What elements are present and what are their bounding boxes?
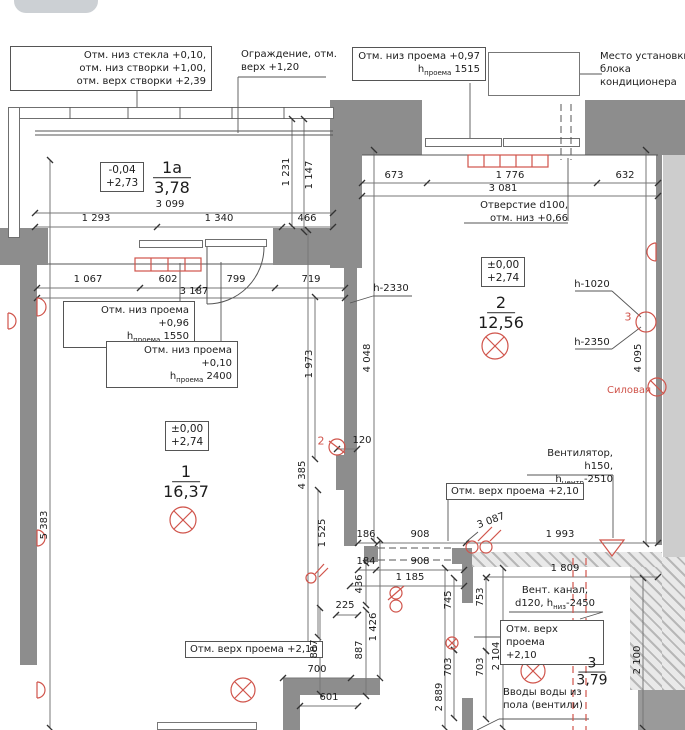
level-value: +2,74 [487,272,519,285]
note-fan: Вентилятор, h150, hцентр-2510 [528,447,613,488]
note-line: Вводы воды из [503,686,583,699]
room-area: 3,79 [576,673,607,690]
room-label-room1: 1 16,37 [163,462,209,502]
level-value: +2,73 [106,177,138,190]
dim-label: 4 095 [634,344,644,373]
dim-label: 887 [310,639,320,658]
dim-label: 120 [352,436,371,446]
dim-label: 3 099 [156,200,185,210]
note-vent-channel: Вент. канал, d120, hниз-2450 [505,584,605,612]
fan-icon [600,540,624,556]
dim-label: 703 [444,657,454,676]
ceiling-light-icon [170,507,196,533]
dim-label: 5 383 [40,511,50,540]
dim-label: 225 [335,601,354,611]
note-line: пола (вентили) [503,699,583,712]
note-line: Отверстие d100, [480,199,568,212]
note-line: блока кондиционера [600,63,685,89]
note-line: отм. низ створки +1,00, [16,62,206,75]
dim-label: 1 067 [74,275,103,285]
dim-label: 1 340 [205,214,234,224]
junction-boxes-icon [466,527,501,553]
ceiling-light-icon [482,333,508,359]
dim-label: 4 385 [298,461,308,490]
dim-label: 673 [384,171,403,181]
dim-label: 1 809 [551,564,580,574]
radiator-icon [468,155,548,167]
level-value: -0,04 [106,164,138,177]
dim-label: 1 426 [369,613,379,642]
room-label-room2: 2 12,56 [478,293,524,333]
dim-label: 887 [355,640,365,659]
dim-label: 602 [158,275,177,285]
level-value: +2,74 [171,436,203,449]
radiator-icon [135,258,201,271]
note-line: Отм. низ проема +0,97 [358,50,480,63]
level-value: ±0,00 [171,423,203,436]
note-water-inlets: Вводы воды из пола (вентили) [503,686,583,712]
level-box-room2: ±0,00 +2,74 [481,257,525,287]
room-label-balcony: 1а 3,78 [153,158,191,198]
dim-label: 436 [355,574,365,593]
note-line: отм. низ +0,66 [480,212,568,225]
ceiling-light-icon [446,637,458,649]
ceiling-light-icon [231,678,255,702]
floor-plan: Отм. низ стекла +0,10, отм. низ створки … [0,0,685,730]
note-line: Отм. верх проема [506,623,598,649]
dim-label: 3 187 [180,287,209,297]
dim-label: 753 [476,587,486,606]
room-area: 16,37 [163,483,209,502]
note-line: hпроема 1515 [358,63,480,78]
dim-label: 908 [410,557,429,567]
room-label-room3: 3 3,79 [576,653,607,690]
socket-icon [8,313,16,329]
dim-label: 466 [297,214,316,224]
room-number: 3 [579,656,606,673]
dim-label: 703 [476,657,486,676]
note-line: Отм. низ проема +0,10 [112,344,232,370]
room-number: 1 [172,463,200,482]
dim-label: 799 [226,275,245,285]
note-line: верх +1,20 [241,61,337,74]
room-number: 1а [153,159,191,178]
dim-label: 4 048 [363,344,373,373]
switch-icon [306,564,328,583]
dim-label: 1 525 [318,519,328,548]
note-hole: Отверстие d100, отм. низ +0,66 [480,199,568,225]
note-top210-mid: Отм. верх проема +2,10 [446,483,584,500]
note-glass: Отм. низ стекла +0,10, отм. низ створки … [10,46,212,91]
dim-label: 719 [301,275,320,285]
note-line: hпроема 2400 [112,370,232,385]
note-fence: Ограждение, отм. верх +1,20 [241,48,337,74]
note-line: Отм. низ стекла +0,10, [16,49,206,62]
dim-label: 1 185 [396,573,425,583]
dim-label: 700 [307,665,326,675]
wall-outlet-pair-icon [388,586,404,612]
level-value: ±0,00 [487,259,519,272]
note-line: Место установки [600,50,685,63]
room-number: 2 [487,294,515,313]
note-line: отм. верх створки +2,39 [16,75,206,88]
note-h2330: h-2330 [373,284,408,294]
dim-label: 1 973 [305,350,315,379]
note-line: Отм. низ проема +0,96 [69,304,189,330]
level-box-room1: ±0,00 +2,74 [165,421,209,451]
note-line: d120, hниз-2450 [505,597,605,612]
dim-label: 908 [410,530,429,540]
note-top210-left: Отм. верх проема +2,10 [185,641,323,658]
dim-label: 1 993 [546,530,575,540]
dim-label: 601 [319,693,338,703]
marker-3: 3 [625,312,632,323]
marker-circle [329,439,345,455]
dim-label: 2 100 [633,646,643,675]
socket-icon [37,298,46,316]
note-opening-097: Отм. низ проема +0,97 hпроема 1515 [352,47,486,81]
dim-label: 745 [444,590,454,609]
socket-icon [37,682,45,698]
marker-2: 2 [318,436,325,447]
dim-label: 2 889 [435,683,445,712]
note-line: Отм. верх проема +2,10 [190,643,318,656]
room-area: 12,56 [478,314,524,333]
socket-icon [647,243,656,261]
level-box-balcony: -0,04 +2,73 [100,162,144,192]
note-opening-010: Отм. низ проема +0,10 hпроема 2400 [106,341,238,388]
note-h2350: h-2350 [574,338,609,348]
dim-label: 632 [615,171,634,181]
dim-label: 186 [356,530,375,540]
dim-label: 1 776 [496,171,525,181]
note-line: Отм. верх проема +2,10 [451,485,579,498]
note-line: Вентилятор, [528,447,613,460]
note-line: Ограждение, отм. [241,48,337,61]
note-ac: Место установки блока кондиционера [600,50,685,89]
room-area: 3,78 [153,179,191,198]
note-line: Вент. канал, [505,584,605,597]
dim-label: 184 [356,557,375,567]
dim-label: 1 231 [282,158,292,187]
dim-label: 1 147 [305,161,315,190]
dim-label: 3 081 [489,184,518,194]
note-h1020: h-1020 [574,280,609,290]
dim-label: 1 293 [82,214,111,224]
dim-label: 2 104 [492,642,502,671]
note-silovaya: Силовая [607,386,651,396]
